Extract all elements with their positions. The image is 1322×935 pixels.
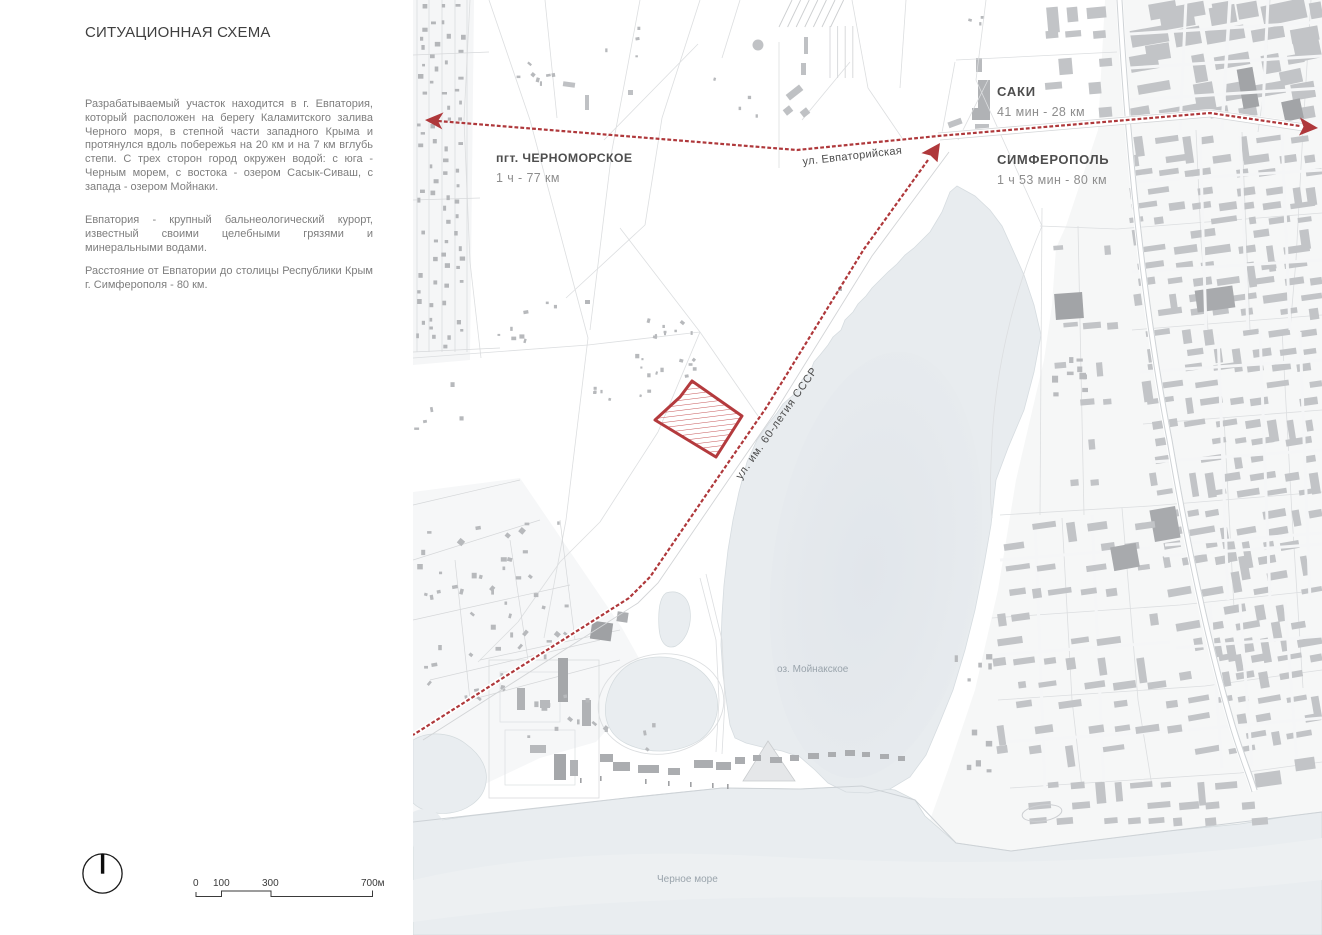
svg-text:1 ч - 77 км: 1 ч - 77 км [496, 171, 560, 185]
svg-text:0: 0 [193, 878, 199, 889]
svg-text:оз. Мойнакское: оз. Мойнакское [777, 664, 849, 675]
svg-text:пгт. ЧЕРНОМОРСКОЕ: пгт. ЧЕРНОМОРСКОЕ [496, 151, 632, 165]
svg-text:Черное море: Черное море [657, 874, 718, 885]
svg-text:41 мин - 28 км: 41 мин - 28 км [997, 105, 1085, 119]
svg-text:300: 300 [262, 878, 279, 889]
svg-text:1 ч 53 мин - 80 км: 1 ч 53 мин - 80 км [997, 173, 1107, 187]
svg-text:100: 100 [213, 878, 230, 889]
svg-text:СИМФЕРОПОЛЬ: СИМФЕРОПОЛЬ [997, 152, 1109, 167]
svg-text:САКИ: САКИ [997, 84, 1036, 99]
svg-text:700м: 700м [361, 878, 385, 889]
